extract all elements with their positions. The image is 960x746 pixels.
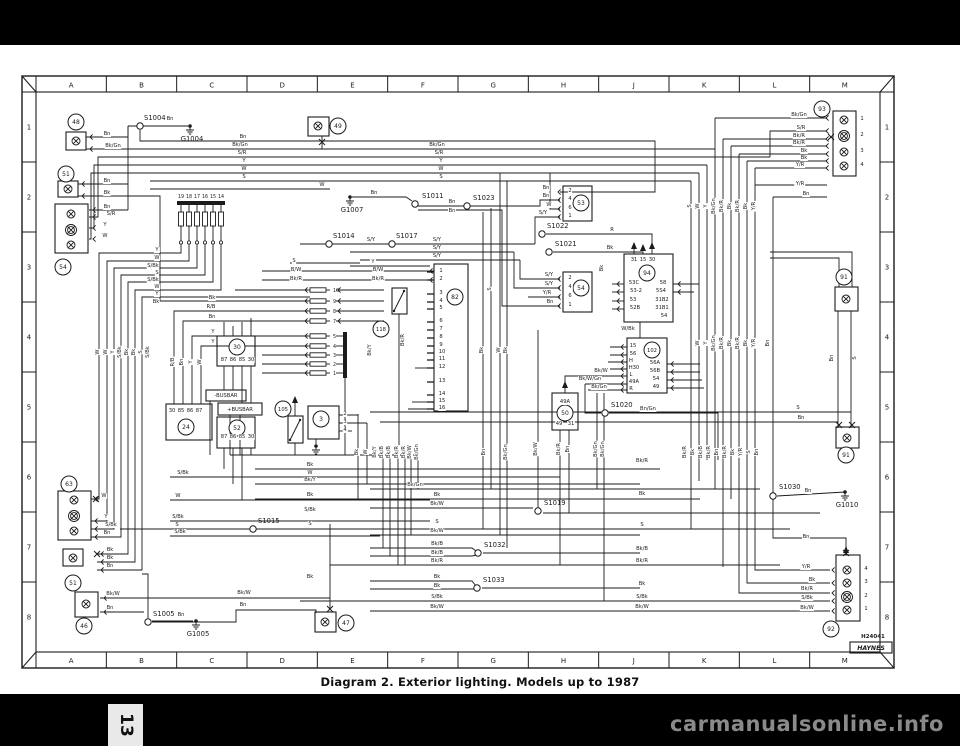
svg-text:C: C	[209, 82, 214, 90]
wire-label: H30	[629, 365, 640, 371]
svg-text:G1010: G1010	[836, 501, 859, 509]
component-ref: 49	[330, 118, 346, 134]
wire-labels: BnBk/GnBnBnBkBnS/RYWYWS/BkSS/BkWYBkBkR/B…	[95, 112, 869, 618]
watermark-text: carmanualsonline.info	[670, 712, 944, 736]
svg-text:92: 92	[827, 626, 835, 633]
splice: S1023	[464, 194, 495, 209]
wire-label: L	[630, 372, 633, 378]
wire-label: Bk/R	[400, 334, 406, 346]
wire-label: S	[796, 405, 799, 411]
wire-label: Bn	[798, 415, 805, 421]
bulb-icon	[82, 600, 90, 608]
wire-label: S/R	[797, 125, 806, 131]
wire-label: 2	[439, 276, 442, 282]
wire-label: Bn	[449, 199, 456, 205]
component-ref: 30	[229, 339, 245, 355]
wire-label: Bk/Gn	[503, 444, 509, 460]
wire-label: Y/R	[795, 181, 805, 187]
wire-label: S	[439, 174, 442, 180]
svg-text:91: 91	[840, 274, 848, 281]
wire-label: Bn	[803, 191, 810, 197]
wire-label: 85	[178, 408, 185, 414]
bulb-icon	[840, 116, 848, 124]
svg-text:S1019: S1019	[544, 499, 566, 507]
wire-label: Y/R	[738, 447, 744, 457]
wire-label: S/Bk	[147, 277, 159, 283]
svg-text:7: 7	[885, 544, 889, 552]
splice: S1011	[412, 192, 444, 207]
wire-label: Bk	[730, 449, 736, 456]
wire-label: +BUSBAR	[227, 407, 253, 413]
svg-text:A: A	[69, 82, 74, 90]
wire-label: Bn	[240, 602, 247, 608]
bulb-icon	[321, 618, 329, 626]
connector-ticks	[427, 272, 434, 409]
wire-label: W	[241, 166, 246, 172]
wire-label: 5S4	[656, 288, 667, 294]
wire-label: 12	[439, 364, 446, 370]
svg-text:5: 5	[885, 404, 889, 412]
wire-label: R	[610, 227, 614, 233]
splice: S1030	[770, 483, 801, 499]
svg-text:8: 8	[885, 614, 889, 622]
component-ref: 51	[58, 166, 74, 182]
splice: S1020	[602, 401, 633, 416]
wire-label: W	[546, 202, 551, 208]
wire-label: Bn	[107, 605, 114, 611]
svg-text:J: J	[632, 82, 635, 90]
wire-label: S/Bk	[431, 594, 443, 600]
svg-text:M: M	[842, 657, 848, 665]
bulb-icon	[70, 527, 78, 535]
splice: S1017	[389, 232, 418, 247]
svg-text:30: 30	[233, 344, 241, 351]
svg-text:S1004: S1004	[144, 114, 166, 122]
svg-text:8: 8	[27, 614, 31, 622]
wire-label: Bk/W	[533, 442, 539, 455]
wire-label: 9	[439, 342, 442, 348]
svg-text:L: L	[773, 82, 777, 90]
wire-label: Bn	[805, 488, 812, 494]
wire-label: W/Bk	[621, 326, 634, 332]
component-ref: 24	[178, 419, 194, 435]
wire-label: 87	[196, 408, 203, 414]
wire-label: Bk	[354, 449, 360, 456]
wire-label: Bk/W	[594, 368, 607, 374]
wire-label: Bk/Gn	[593, 441, 599, 457]
svg-text:M: M	[842, 82, 848, 90]
wire-label: Bk/Gn	[711, 198, 717, 214]
wire-label: Bk/R	[706, 446, 712, 458]
wire-label: Bk	[434, 574, 441, 580]
wire-label: -BUSBAR	[214, 393, 237, 399]
svg-text:118: 118	[376, 327, 386, 333]
wire-label: W	[695, 203, 701, 208]
wire-label: Bk/W	[407, 445, 413, 458]
wire-label: Bk/R	[719, 200, 725, 212]
svg-text:E: E	[350, 82, 354, 90]
svg-text:3: 3	[885, 264, 889, 272]
wire-label: W	[695, 340, 701, 345]
component-ref: 54	[573, 280, 589, 296]
svg-text:S1032: S1032	[484, 541, 506, 549]
svg-text:H: H	[561, 657, 566, 665]
svg-text:C: C	[209, 657, 214, 665]
wire-label: S/Y	[433, 245, 442, 251]
wire-label: Bk	[434, 492, 441, 498]
wire-label: 56	[630, 351, 637, 357]
wire-label: 1	[568, 213, 571, 219]
wire-label: Bk/Y	[304, 477, 316, 483]
svg-text:2: 2	[885, 194, 889, 202]
wire-label: W	[363, 449, 369, 454]
wire-label: Bk	[607, 245, 614, 251]
svg-text:1: 1	[885, 124, 889, 132]
svg-text:D: D	[279, 82, 284, 90]
wire-label: Bk/Gn	[105, 143, 121, 149]
svg-text:54: 54	[577, 285, 585, 292]
pin-chevrons	[82, 115, 835, 614]
wire-label: 31	[568, 421, 575, 427]
wire-label: S/Bk	[147, 263, 159, 269]
wire-label: S/Bk	[145, 346, 151, 358]
wire-label: Bk/Gn	[600, 441, 606, 457]
bulb-icon	[64, 185, 72, 193]
wire-label: Bk/R	[636, 558, 648, 564]
svg-text:24: 24	[182, 424, 190, 431]
svg-text:S1011: S1011	[422, 192, 444, 200]
component-ref: 105	[275, 401, 291, 417]
wire-label: Bk	[107, 555, 114, 561]
svg-text:93: 93	[818, 106, 826, 113]
wire-label: Bk	[104, 190, 111, 196]
wire-label: Bk	[727, 340, 733, 347]
wire-label: Bk/R	[793, 140, 805, 146]
wire-label: Bk/R	[636, 458, 648, 464]
bulb-icon	[314, 122, 322, 130]
wire-label: Bk/R	[735, 337, 741, 349]
wire-label: 2	[864, 593, 867, 599]
wire-label: 15	[630, 343, 637, 349]
bulb-icon	[840, 148, 848, 156]
svg-text:S1005: S1005	[153, 610, 175, 618]
wire-label: S/Bk	[174, 529, 186, 535]
wire-label: 10	[439, 349, 446, 355]
svg-text:54: 54	[59, 264, 67, 271]
wire-label: 85	[239, 357, 246, 363]
bulb-icon	[840, 162, 848, 170]
scanned-manual-page: AABBCCDDEEFFGGHHJJKKLLMM1122334455667788…	[0, 0, 960, 746]
bulb-icon	[66, 225, 77, 236]
wire-label: S	[175, 522, 178, 528]
wire-label: W	[197, 359, 203, 364]
wire-label: Bk	[307, 574, 314, 580]
svg-text:S1022: S1022	[547, 222, 569, 230]
component-ref: 53	[573, 195, 589, 211]
svg-text:5: 5	[27, 404, 31, 412]
wire-label: 53C	[629, 280, 640, 286]
wire-label: 30	[649, 257, 656, 263]
wire-label: S	[852, 356, 858, 359]
wire-label: S/Bk	[304, 507, 316, 513]
splice: S1033	[474, 576, 505, 591]
svg-text:S1023: S1023	[473, 194, 495, 202]
wire-label: S/Y	[433, 253, 442, 259]
wire-label: Y/R	[751, 338, 757, 348]
svg-text:L: L	[773, 657, 777, 665]
wire-label: 3	[439, 290, 442, 296]
wire-label: Bk/Gn	[791, 112, 807, 118]
wire-label: Bn	[714, 449, 720, 456]
bulb-icon	[839, 131, 850, 142]
wire-label: S/Y	[367, 237, 376, 243]
wire-label: S	[308, 521, 311, 527]
wire-label: Bk/R	[682, 446, 688, 458]
wire-label: 1	[860, 116, 863, 122]
wire-label: S/Y	[545, 281, 554, 287]
wire-label: Bn	[179, 359, 185, 366]
wire-label: Bk/B	[379, 446, 385, 458]
svg-text:H24041: H24041	[861, 634, 885, 640]
wire-label: Bk/Gn	[711, 335, 717, 351]
wire-label: R	[629, 386, 633, 392]
svg-text:G1004: G1004	[181, 135, 204, 143]
wire-label: S	[687, 204, 693, 207]
wire-label: 49	[556, 421, 563, 427]
wire-label: 31B1	[655, 305, 668, 311]
wire-label: S/Bk	[177, 470, 189, 476]
wire-label: Bk/R	[556, 443, 562, 455]
wire-label: Bn	[565, 446, 571, 453]
svg-text:52: 52	[233, 425, 241, 432]
wire-label: Bn	[543, 193, 550, 199]
wire-label: 16	[439, 405, 446, 411]
wire-label: Bk/B	[431, 541, 443, 547]
bulb-icon	[842, 295, 850, 303]
wire-label: W	[102, 233, 107, 239]
svg-text:46: 46	[80, 623, 88, 630]
wire-label: S	[435, 519, 438, 525]
svg-text:K: K	[702, 657, 707, 665]
wire-label: W	[319, 182, 324, 188]
wire-label: W	[154, 284, 159, 290]
svg-text:53: 53	[577, 200, 585, 207]
svg-text:50: 50	[561, 410, 569, 417]
wire-label: 56A	[650, 360, 661, 366]
wire-label: Bk/R	[722, 446, 728, 458]
wire-label: Bk	[209, 295, 216, 301]
bulb-icon	[843, 566, 851, 574]
svg-text:K: K	[702, 82, 707, 90]
wire-label: B/W	[373, 267, 383, 273]
wire-label: 87	[221, 357, 228, 363]
wire-label: Bn	[107, 563, 114, 569]
diagram-caption: Diagram 2. Exterior lighting. Models up …	[0, 675, 960, 689]
bulb-icon	[843, 579, 851, 587]
wire-label: Y/R	[801, 564, 811, 570]
svg-text:1: 1	[333, 371, 336, 377]
wire-label: 86	[230, 434, 237, 440]
wire-label: S	[640, 522, 643, 528]
wire-label: Bn	[765, 340, 771, 347]
page-number-box: 13	[108, 704, 143, 746]
wire-label: S/R	[107, 211, 116, 217]
wire-label: Bk/Y	[372, 445, 378, 457]
wire-label: Bk/W	[800, 605, 813, 611]
svg-text:16: 16	[202, 194, 208, 200]
wire-label: Bn	[449, 208, 456, 214]
wire-label: Bk/W	[430, 604, 443, 610]
wire-label: 11	[439, 356, 446, 362]
bulb-icon	[67, 210, 75, 218]
svg-text:3: 3	[333, 353, 336, 359]
wire-label: Bn	[167, 116, 174, 122]
wire-label: R/B	[170, 357, 176, 366]
wire-label: S/Y	[545, 272, 554, 278]
wire-label: W	[438, 166, 443, 172]
svg-text:B: B	[139, 82, 144, 90]
wire-label: Bk	[131, 349, 137, 356]
wire-label: Bk	[743, 203, 749, 210]
svg-text:9: 9	[333, 299, 336, 305]
svg-text:4: 4	[27, 334, 32, 342]
wire-label: W	[103, 349, 109, 354]
wire-label: Bk/R	[394, 446, 400, 458]
wire-label: S/Y	[433, 237, 442, 243]
component-ref: 82	[447, 289, 463, 305]
svg-text:A: A	[69, 657, 74, 665]
wire-label: S/Bk	[801, 595, 813, 601]
wire-label: W	[307, 470, 312, 476]
svg-text:7: 7	[27, 544, 31, 552]
wire-label: Bk	[153, 299, 160, 305]
component-ref: 63	[61, 476, 77, 492]
bulb-icon	[69, 554, 77, 562]
wire-label: Bn	[754, 449, 760, 456]
wire-label: 53-2	[630, 288, 642, 294]
wire-label: S/Bk	[117, 346, 123, 358]
svg-text:F: F	[421, 82, 425, 90]
svg-text:91: 91	[842, 452, 850, 459]
bulb-icon	[843, 434, 851, 442]
component-ref: 47	[338, 615, 354, 631]
wire-label: Bk/W	[430, 528, 443, 534]
wire-label: 3	[860, 148, 863, 154]
wire-label: 56B	[650, 368, 661, 374]
svg-text:7: 7	[333, 319, 336, 325]
svg-text:4: 4	[885, 334, 890, 342]
svg-text:48: 48	[72, 119, 80, 126]
svg-text:18: 18	[186, 194, 192, 200]
wire-label: 6	[568, 293, 571, 299]
component-ref: 3	[313, 411, 329, 427]
credits: H24041HAYNES	[857, 634, 885, 652]
component-ref: 118	[373, 321, 389, 337]
wire-label: 30	[169, 408, 176, 414]
component-ref: 50	[557, 405, 573, 421]
wire-label: Bk/R	[801, 586, 813, 592]
wire-label: Bk/Gn	[591, 384, 607, 390]
ground-icon: G1004	[181, 124, 204, 143]
wire-label: 13	[439, 378, 446, 384]
component-ref: 91	[838, 447, 854, 463]
wire-label: Bk/R	[372, 276, 384, 282]
wire-label: S	[746, 450, 752, 453]
svg-text:S1017: S1017	[396, 232, 418, 240]
wire-label: Bk/B	[698, 446, 704, 458]
bulb-icon	[67, 241, 75, 249]
splice: S1032	[475, 541, 506, 556]
wire-label: Bk/B	[431, 550, 443, 556]
wire-label: 87	[221, 434, 228, 440]
svg-text:4: 4	[333, 344, 336, 350]
wire-label: Bn	[543, 185, 550, 191]
wire-label: 1	[439, 268, 442, 274]
wire-label: S	[155, 270, 158, 276]
svg-text:15: 15	[210, 194, 216, 200]
wire-label: Bk	[307, 492, 314, 498]
wire-label: 30	[248, 357, 255, 363]
wire-label: 49A	[629, 379, 640, 385]
wire-label: 52B	[630, 305, 641, 311]
wire-label: 30	[248, 434, 255, 440]
svg-text:S1014: S1014	[333, 232, 355, 240]
wire-label: S	[292, 258, 295, 264]
bulb-icon	[70, 496, 78, 504]
wire-label: Bk	[599, 265, 605, 272]
wire-label: Bk	[503, 347, 509, 354]
wire-label: 86	[187, 408, 194, 414]
wire-label: Y/R	[795, 162, 805, 168]
page-number: 13	[115, 713, 135, 737]
svg-text:S1033: S1033	[483, 576, 505, 584]
svg-text:G: G	[490, 82, 495, 90]
svg-text:17: 17	[194, 194, 200, 200]
wire-label: Bk/W/Gn	[579, 376, 602, 382]
bus-bars	[177, 201, 347, 378]
wire-label: Bn	[803, 534, 810, 540]
wire-label: 53	[630, 297, 637, 303]
wire-label: Bk	[727, 203, 733, 210]
svg-text:G1005: G1005	[187, 630, 210, 638]
wire-label: Bk	[801, 155, 808, 161]
splice: S1022	[539, 222, 569, 237]
wire-label: Bn	[104, 178, 111, 184]
wire-label: Y/R	[542, 290, 552, 296]
bulb-icon	[842, 592, 853, 603]
svg-text:51: 51	[62, 171, 70, 178]
svg-text:HAYNES: HAYNES	[857, 645, 885, 652]
wire-label: Bk/Gn	[429, 142, 445, 148]
svg-text:B: B	[139, 657, 144, 665]
splice: S1005	[145, 610, 175, 625]
svg-text:8: 8	[333, 309, 336, 315]
fuse-rows: 1098754321	[306, 288, 339, 377]
wire-label: Bk	[107, 547, 114, 553]
wire-label: W	[101, 493, 106, 499]
wire-label: Bk	[434, 583, 441, 589]
svg-text:S1020: S1020	[611, 401, 633, 409]
wire-label: H	[629, 358, 633, 364]
bulb-icons	[64, 116, 853, 626]
splice: S1004	[137, 114, 166, 129]
wire-label: Bn	[371, 190, 378, 196]
wire-label: S/R	[435, 150, 444, 156]
wire-label: Bk/R	[290, 276, 302, 282]
svg-text:S1030: S1030	[779, 483, 801, 491]
wire-label: Bk	[307, 462, 314, 468]
ground-icon: G1007	[341, 195, 364, 214]
